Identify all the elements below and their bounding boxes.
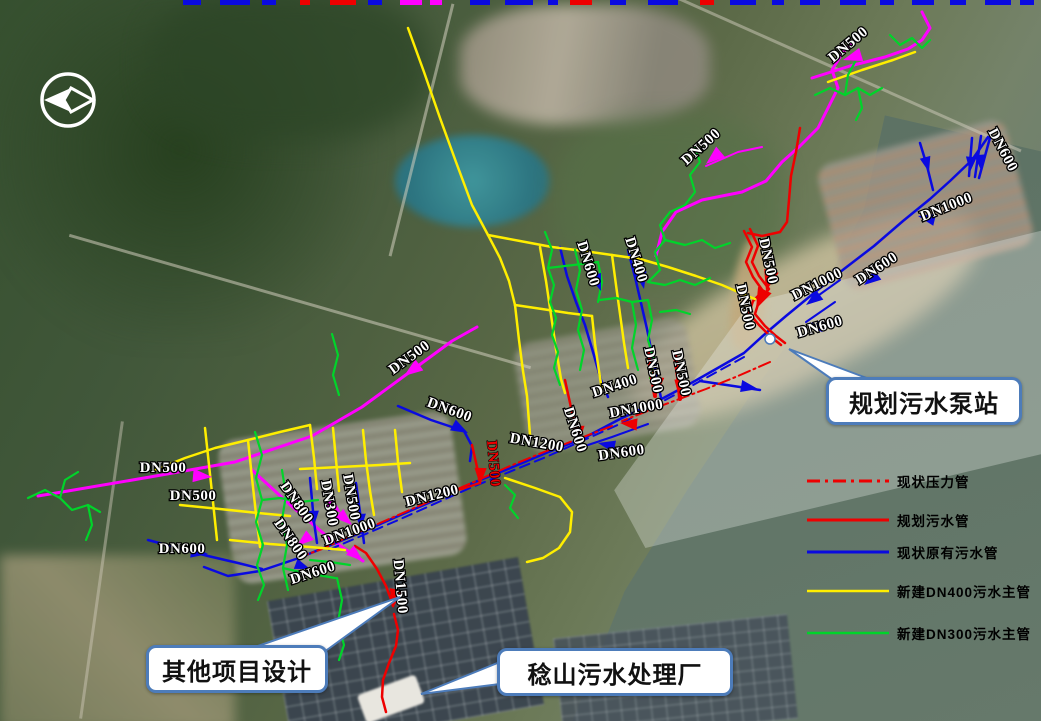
legend-item: 新建DN300污水主管 [806,623,1041,643]
flow-arrow [589,273,606,293]
dn-label: DN500 [679,125,724,168]
green-pipeline [648,212,670,282]
legend-line-sample [806,515,890,525]
green-pipeline [283,568,335,578]
yellow-pipeline [300,463,410,469]
dn-label: DN500 [170,488,217,504]
legend-item: 现状压力管 [806,471,1041,491]
yellow-pipeline [592,316,602,390]
dn-label: DN600 [985,126,1021,175]
flow-arrow [920,156,934,173]
cropped-line-fragment [220,0,250,5]
town-area [216,409,469,585]
dn-label: DN500 [339,473,363,522]
yellow-pipeline [515,305,530,435]
legend-item-label: 现状原有污水管 [897,542,999,562]
yellow-pipeline [180,505,290,516]
blue-pipeline [326,357,744,551]
legend-line-sample [806,628,890,638]
green-pipeline [332,334,339,395]
fish-ponds [267,557,544,721]
flow-arrow [294,559,312,574]
dn-label: DN500 [386,338,433,378]
yellow-pipeline [230,540,345,550]
green-pipeline [890,35,930,48]
dn-label: DN500 [755,237,780,286]
red-pipeline [675,355,680,399]
cropped-line-fragment [1020,0,1034,5]
dn-label: DN300 [317,479,341,528]
red-pipeline [300,426,612,557]
flow-arrow [673,380,690,402]
blue-pipeline [812,280,840,300]
yellow-pipeline [395,430,402,492]
flow-arrow [192,469,212,484]
cropped-line-fragment [772,0,784,5]
blue-pipeline [560,247,608,397]
yellow-pipeline [363,430,374,515]
flow-arrow [917,210,936,226]
legend-item-label: 现状压力管 [897,471,970,491]
green-pipeline [648,300,654,378]
green-pipeline [856,88,862,120]
blue-pipeline [700,381,760,390]
callout-renshan-treatment-plant: 稔山污水处理厂 [497,648,733,696]
red-pipeline [622,362,770,421]
flow-arrow [805,318,823,332]
town-area [512,316,703,455]
flow-arrow [648,377,665,399]
flow-arrow [400,359,423,381]
highlight-wash [0,0,1041,721]
dn-label: DN600 [853,249,901,288]
flow-arrow [450,420,471,439]
pump-station-symbol [765,334,775,344]
yellow-pipeline [505,478,572,562]
flow-arrow [572,426,585,444]
flow-arrow [749,287,771,312]
flow-arrow [597,437,616,453]
dn-label: DN600 [597,442,645,464]
flow-arrow [802,290,823,310]
flow-arrow [740,380,759,395]
green-pipeline [632,302,638,370]
flow-arrow [355,514,366,530]
dn-label: DN400 [621,235,650,284]
dn-label: DN600 [795,313,844,341]
legend-item-label: 新建DN300污水主管 [897,623,1031,643]
cropped-line-fragment [950,0,966,5]
green-pipeline [310,560,350,565]
green-pipeline [600,298,648,302]
farmland-area [0,555,235,721]
dn-label: DN500 [668,349,693,398]
yellow-pipeline [310,425,317,489]
dn-label: DN600 [560,405,590,454]
flow-arrow [841,48,863,67]
magenta-pipeline [252,470,363,561]
flow-arrow [702,147,725,170]
flow-arrow [386,588,403,609]
green-pipeline [505,485,518,518]
cropped-line-fragment [262,0,276,5]
green-pipeline [598,262,602,302]
dn-label: DN500 [732,283,757,332]
dn-label: DN400 [590,371,639,401]
green-pipeline [28,490,100,512]
legend-item: 规划污水管 [806,510,1041,530]
cropped-line-fragment [570,0,592,5]
road [79,421,124,718]
red-pipeline [382,614,398,712]
dn-label: DN1500 [390,559,411,615]
blue-pipeline [920,143,933,190]
green-pipeline [575,250,584,370]
blue-pipeline [975,136,981,177]
road [389,3,455,256]
red-pipeline [750,229,785,343]
dn-label: DN500 [825,24,871,66]
yellow-pipeline [488,235,640,259]
flow-arrow [346,545,367,565]
green-pipeline [648,278,710,285]
town-area [814,117,1036,293]
green-pipeline [845,62,855,95]
blue-pipeline [356,483,364,543]
legend-item: 新建DN400污水主管 [806,581,1041,601]
dn-label: DN600 [425,395,474,426]
red-pipeline [648,352,655,396]
cropped-line-fragment [985,0,1011,5]
blue-pipeline [588,424,648,445]
callout-planned-pump-station: 规划污水泵站 [826,377,1022,425]
dn-label: DN600 [159,541,206,557]
cropped-line-fragment [912,0,934,5]
cropped-line-fragment [700,0,714,5]
legend-line-sample [806,547,890,557]
yellow-pipeline [612,255,628,368]
green-pipeline [337,578,344,660]
red-pipeline [744,231,781,345]
green-pipeline [660,310,690,314]
treatment-plant-site [357,674,426,721]
dn-label: DN600 [573,239,602,288]
green-pipeline [545,232,560,385]
cropped-line-fragment [880,0,894,5]
cropped-line-fragment [183,0,201,5]
legend-line-sample [806,586,890,596]
flow-arrow [965,156,977,172]
cropped-line-fragment [800,0,820,5]
flow-arrow [335,509,356,530]
cropped-line-fragment [400,0,422,5]
cropped-line-fragment [730,0,756,5]
dn-label: DN500 [140,460,187,476]
blue-pipeline [979,134,991,178]
yellow-pipeline [408,28,515,305]
green-pipeline [86,505,92,540]
blue-pipeline [628,250,661,398]
cropped-line-fragment [505,0,533,5]
blue-pipeline [148,540,262,569]
flow-arrow [860,270,881,290]
sea-area [0,0,1041,721]
cropped-line-fragment [548,0,558,5]
road [618,0,1021,152]
flow-arrow [634,271,650,290]
green-pipeline [670,148,700,212]
flow-arrow [974,154,986,170]
flow-arrow [474,468,487,486]
dn-label: DN500 [483,440,503,488]
bare-ground-area [460,5,710,125]
green-pipeline [665,240,730,248]
dn-label: DN1000 [608,396,665,421]
cropped-line-fragment [430,0,442,5]
cropped-line-fragment [610,0,626,5]
dn-label: DN600 [288,558,337,588]
yellow-pipeline [515,305,592,316]
dn-label: DN800 [276,479,316,526]
yellow-pipeline [640,259,755,299]
satellite-basemap: DN500DN600DN1000DN500DN500DN600DN1000DN6… [0,0,1041,721]
callout-label: 其他项目设计 [162,652,312,687]
cropped-line-fragment [648,0,678,5]
forest-area [150,0,430,140]
blue-pipeline [310,478,317,543]
magenta-pipeline [38,327,477,496]
callout-label: 规划污水泵站 [849,384,999,419]
callout-other-project-design: 其他项目设计 [146,645,328,693]
callout-label: 稔山污水处理厂 [528,655,703,690]
magenta-pipeline [706,147,762,166]
red-pipeline [748,128,800,236]
green-pipeline [60,472,78,498]
magenta-pipeline [656,40,856,256]
yellow-pipeline [248,440,260,547]
green-pipeline [548,262,598,268]
green-pipeline [262,498,318,502]
yellow-pipeline [828,52,915,82]
green-pipeline [282,470,288,590]
cropped-line-fragment [470,0,490,5]
flow-arrow [759,269,779,293]
blue-pipeline [806,302,835,322]
pipeline-overlay: DN500DN600DN1000DN500DN500DN600DN1000DN6… [0,0,1041,721]
dn-label: DN1000 [918,190,975,225]
cropped-line-fragment [368,0,382,5]
cropped-line-fragment [330,0,356,5]
legend-line-sample [806,476,890,486]
yellow-pipeline [540,247,565,393]
dn-label: DN800 [270,516,310,563]
farmland-area [555,115,785,285]
legend-item: 现状原有污水管 [806,542,1041,562]
callout-leader [421,662,500,694]
cropped-line-fragment [300,0,310,5]
reservoir [395,135,550,227]
green-pipeline [255,432,264,600]
compass-rose-icon [33,65,103,135]
yellow-pipeline [205,428,217,540]
legend-item-label: 新建DN400污水主管 [897,581,1031,601]
forest-area [0,0,400,340]
dn-label: DN1200 [508,430,565,455]
red-pipeline [565,380,578,441]
dn-label: DN1000 [789,265,845,304]
dn-label: DN1000 [321,515,378,549]
callout-leader [789,349,872,380]
road [69,234,531,369]
yellow-pipeline [333,428,339,491]
flow-arrow [324,497,345,518]
cropped-line-fragment [840,0,866,5]
green-pipeline [815,88,882,95]
blue-pipeline [398,406,472,461]
flow-arrow [308,511,319,527]
flow-arrow [619,417,637,431]
magenta-pipeline [812,12,930,78]
dn-label: DN1200 [404,482,461,511]
blue-pipeline [969,138,972,176]
red-pipeline [355,546,393,606]
legend-item-label: 规划污水管 [897,510,970,530]
flow-arrow [190,546,209,561]
dn-label: DN500 [640,346,665,395]
red-pipeline [472,445,480,483]
flow-arrow [293,530,314,550]
river [725,236,774,352]
red-pipeline [448,483,480,492]
yellow-pipeline [155,425,310,470]
